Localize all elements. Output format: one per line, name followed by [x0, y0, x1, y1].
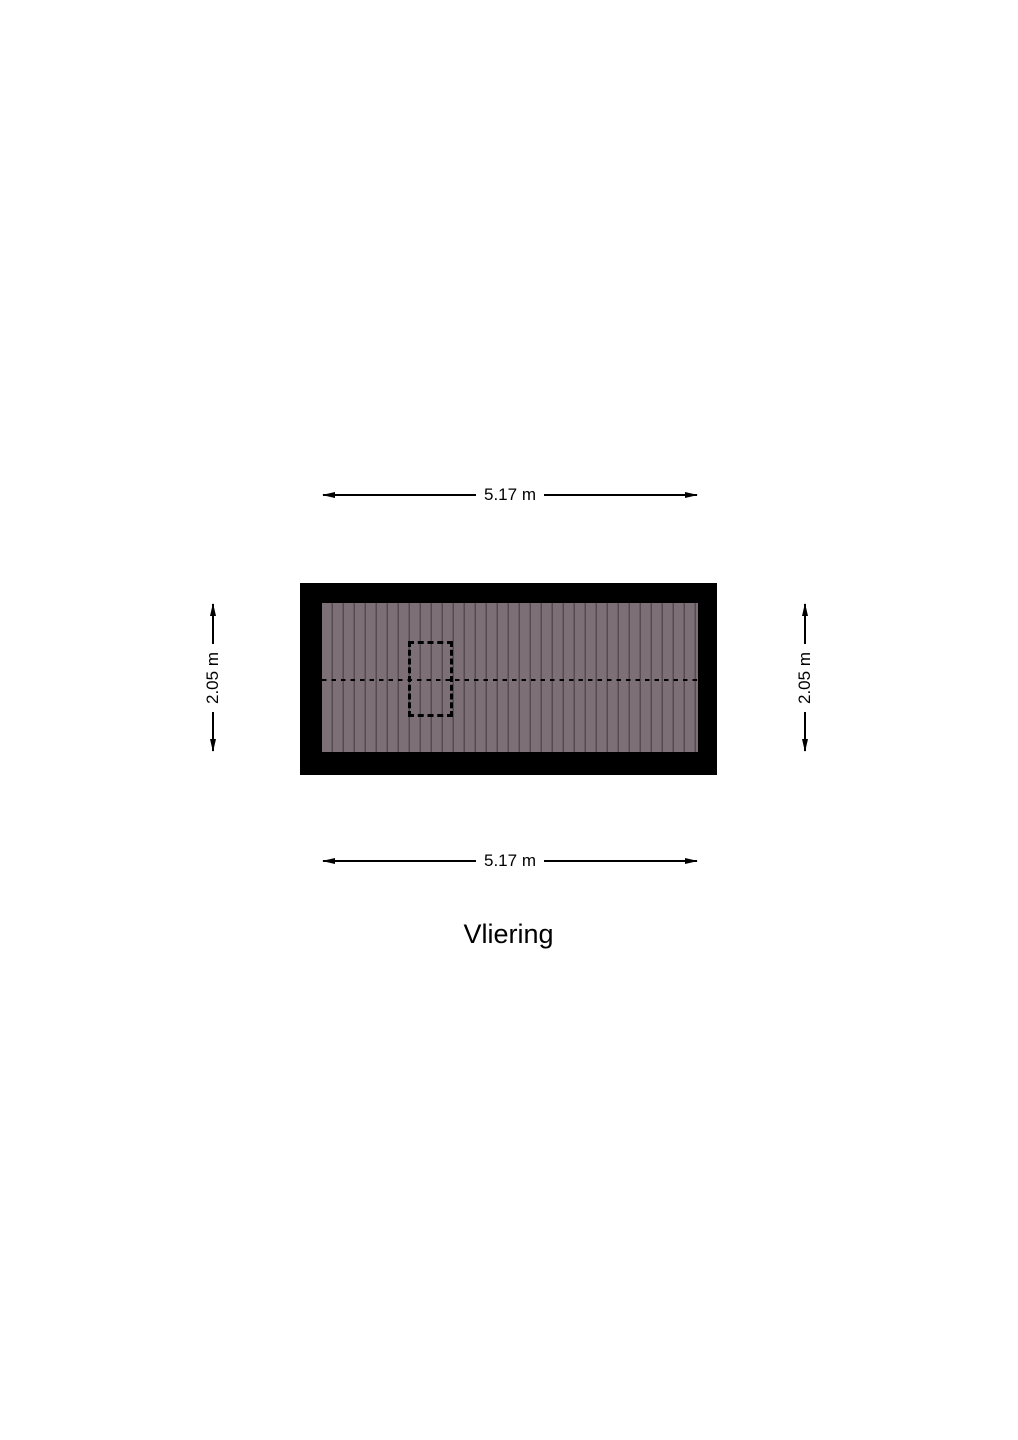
dimension-right: 2.05 m	[797, 603, 813, 752]
dimension-arrowhead-left-icon	[322, 858, 335, 864]
dimension-arrowhead-left-icon	[322, 492, 335, 498]
dimension-label-right: 2.05 m	[794, 644, 816, 712]
dimension-bottom: 5.17 m	[322, 853, 698, 869]
floorplan-page: 5.17 m 2.05 m 2.05 m 5.17 m Vliering	[0, 0, 1018, 1440]
hatch-opening-outline	[408, 641, 453, 717]
dimension-arrowhead-down-icon	[802, 739, 808, 752]
dimension-top: 5.17 m	[322, 487, 698, 503]
dimension-arrowhead-right-icon	[685, 492, 698, 498]
floorplan-title: Vliering	[300, 919, 717, 950]
dimension-arrowhead-down-icon	[210, 739, 216, 752]
dimension-label-left: 2.05 m	[202, 644, 224, 712]
ridge-dashed-line	[322, 679, 698, 681]
dimension-arrowhead-right-icon	[685, 858, 698, 864]
dimension-left: 2.05 m	[205, 603, 221, 752]
dimension-label-top: 5.17 m	[476, 484, 544, 506]
dimension-arrowhead-up-icon	[802, 603, 808, 616]
dimension-label-bottom: 5.17 m	[476, 850, 544, 872]
room-walls	[300, 583, 717, 775]
room-floor	[322, 603, 698, 752]
dimension-arrowhead-up-icon	[210, 603, 216, 616]
